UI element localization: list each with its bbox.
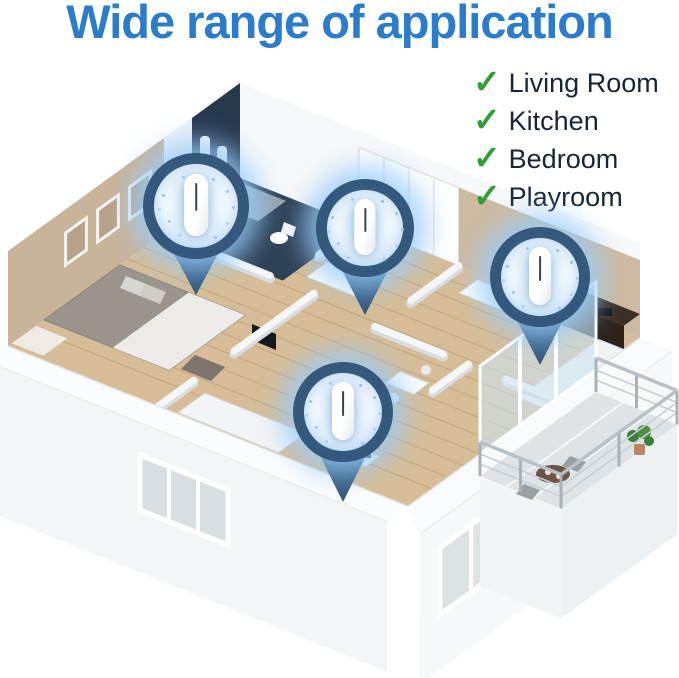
air-purifier-device [184, 174, 208, 236]
marketing-banner: Wide range of application ✓ Living Room … [0, 0, 679, 678]
checklist-label: Kitchen [509, 106, 599, 137]
device-indicator [539, 256, 541, 281]
check-icon: ✓ [473, 141, 501, 174]
checklist-label: Playroom [509, 182, 623, 213]
checklist-item-kitchen: ✓ Kitchen [473, 102, 659, 140]
checklist-item-bedroom: ✓ Bedroom [473, 140, 659, 178]
air-purifier-device [332, 382, 354, 440]
location-pin-icon [316, 179, 414, 277]
device-indicator [342, 391, 344, 416]
stove [598, 308, 612, 316]
device-pin-living-room [293, 362, 393, 462]
checklist-item-playroom: ✓ Playroom [473, 178, 659, 216]
checklist-label: Bedroom [509, 144, 619, 175]
dining-chair [421, 365, 431, 375]
room-checklist: ✓ Living Room ✓ Kitchen ✓ Bedroom ✓ Play… [473, 64, 659, 216]
air-purifier-device [529, 247, 551, 305]
check-icon: ✓ [473, 103, 501, 136]
device-indicator [195, 183, 197, 210]
check-icon: ✓ [473, 65, 501, 98]
device-pin-bedroom [143, 153, 249, 259]
check-icon: ✓ [473, 179, 501, 212]
plant-pot [634, 444, 645, 455]
checklist-label: Living Room [509, 68, 659, 99]
air-purifier-device [354, 199, 375, 255]
location-pin-icon [143, 153, 249, 259]
toilet [270, 232, 288, 244]
location-pin-icon [293, 362, 393, 462]
checklist-item-living-room: ✓ Living Room [473, 64, 659, 102]
device-pin-hallway [316, 179, 414, 277]
location-pin-icon [490, 227, 590, 327]
device-pin-kitchen [490, 227, 590, 327]
device-indicator [364, 208, 366, 233]
plant-icon [644, 436, 654, 446]
